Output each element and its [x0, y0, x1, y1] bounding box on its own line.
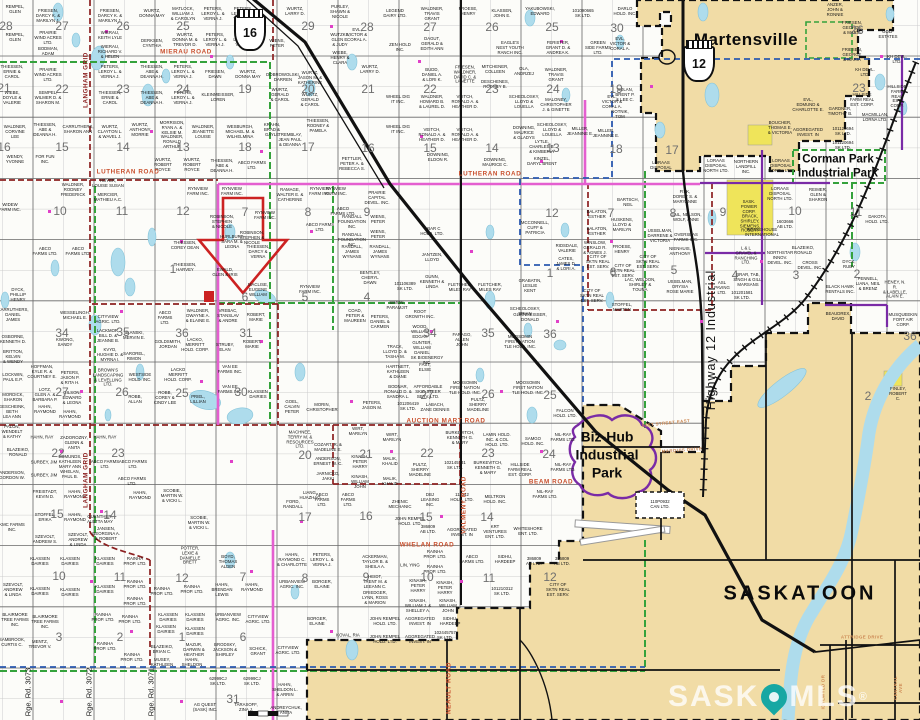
- parcel-flag: [470, 250, 473, 253]
- pond: [524, 323, 532, 337]
- parcel-flag: [556, 320, 559, 323]
- pond: [347, 54, 357, 70]
- pond: [51, 260, 59, 276]
- parcel-flag: [540, 450, 543, 453]
- parcel-flag: [420, 135, 423, 138]
- parcel-flag: [700, 320, 703, 323]
- highway-16-shield: 16: [234, 15, 266, 51]
- yellow-parcel: [748, 125, 772, 145]
- sask-power-parcel: [727, 180, 773, 235]
- pond: [111, 248, 125, 276]
- pond: [136, 364, 144, 380]
- parcel-flag: [260, 340, 263, 343]
- pond: [606, 292, 614, 308]
- parcel-flag: [60, 700, 63, 703]
- pond: [291, 585, 299, 599]
- parcel-flag: [180, 700, 183, 703]
- parcel-flag: [650, 85, 653, 88]
- highway-12-shield: 12: [683, 46, 715, 82]
- pond: [295, 363, 305, 381]
- parcel-flag: [120, 310, 123, 313]
- pond: [89, 45, 107, 71]
- parcel-flag: [150, 130, 153, 133]
- pond: [162, 69, 170, 83]
- parcel-flag: [390, 450, 393, 453]
- red-arrow-annotation: [199, 198, 287, 293]
- parcel-flag: [105, 30, 108, 33]
- pond: [105, 409, 111, 421]
- pond: [486, 225, 494, 239]
- parcel-flag: [250, 570, 253, 573]
- parcel-flag: [310, 230, 313, 233]
- pond: [655, 122, 665, 138]
- pond: [1, 292, 9, 308]
- parcel-flag: [610, 240, 613, 243]
- pond: [527, 407, 537, 423]
- parcel-flag: [230, 460, 233, 463]
- parcel-flag: [180, 240, 183, 243]
- pond: [72, 33, 80, 47]
- parcel-flag: [430, 330, 433, 333]
- pond: [305, 80, 315, 96]
- parcel-flag: [48, 210, 51, 213]
- pond: [562, 88, 570, 102]
- parcel-flag: [880, 55, 883, 58]
- can-ltd-parcel: [636, 492, 684, 518]
- pond: [886, 7, 894, 21]
- red-square-annotation: [204, 291, 214, 302]
- parcel-flag: [200, 380, 203, 383]
- parcel-flag: [560, 40, 563, 43]
- pond: [53, 3, 63, 21]
- parcel-flag: [260, 150, 263, 153]
- base-map: [0, 0, 920, 720]
- parcel-flag: [500, 390, 503, 393]
- pond: [142, 84, 154, 106]
- parcel-flag: [130, 630, 133, 633]
- parcel-flag: [330, 630, 333, 633]
- parcel-flag: [80, 390, 83, 393]
- parcel-flag: [760, 260, 763, 263]
- scale-bar: [248, 711, 288, 716]
- parcel-flag: [330, 25, 333, 28]
- parcel-flag: [440, 515, 443, 518]
- parcel-flag: [100, 510, 103, 513]
- pond: [875, 74, 885, 90]
- pond: [225, 552, 235, 568]
- parcel-flag: [60, 450, 63, 453]
- pond: [698, 3, 708, 21]
- pond: [705, 83, 719, 107]
- parcel-flag: [300, 520, 303, 523]
- pond: [225, 224, 235, 240]
- pond: [125, 278, 135, 296]
- pond: [476, 368, 484, 382]
- parcel-flag: [540, 160, 543, 163]
- parcel-flag: [418, 60, 421, 63]
- martensville-area: [637, 0, 893, 171]
- pond: [616, 35, 624, 49]
- pond: [346, 640, 358, 660]
- pond: [148, 228, 156, 246]
- parcel-flag: [90, 580, 93, 583]
- parcel-flag: [460, 580, 463, 583]
- pond: [554, 340, 566, 350]
- pond: [561, 223, 569, 237]
- parcel-flag: [210, 55, 213, 58]
- pond: [525, 10, 535, 26]
- map-canvas[interactable]: REMPEL, GLENFRIESEN, DARCY K. & MARILYN …: [0, 0, 920, 720]
- parcel-flag: [350, 400, 353, 403]
